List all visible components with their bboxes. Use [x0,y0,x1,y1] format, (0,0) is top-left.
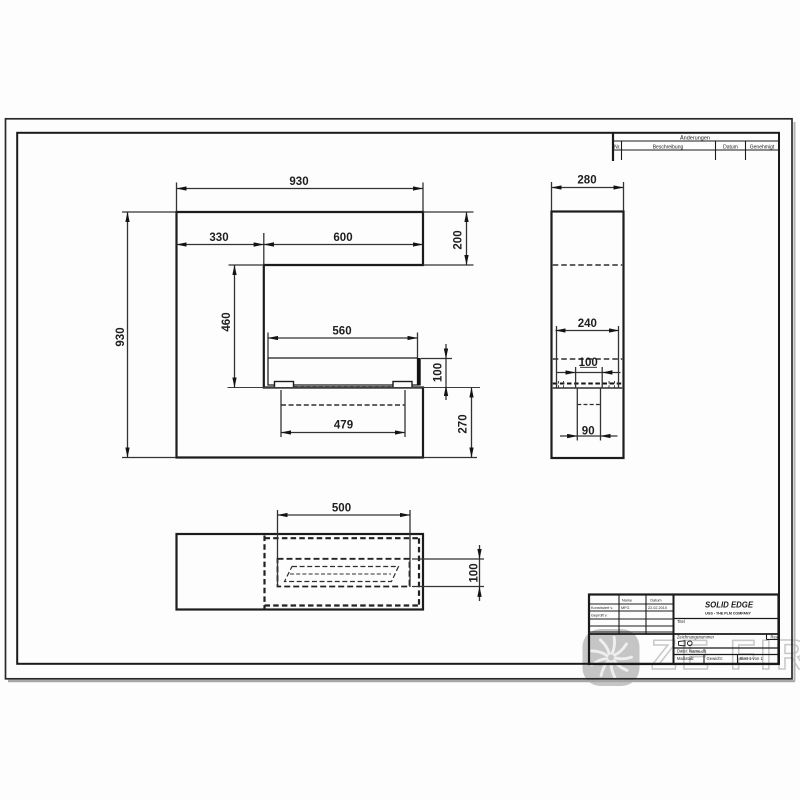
svg-text:Name: Name [622,599,632,603]
svg-text:Genehmigt: Genehmigt [750,145,775,151]
svg-text:Datei: Name.dft: Datei: Name.dft [677,649,707,654]
svg-text:Datum: Datum [723,145,738,151]
svg-text:100: 100 [433,363,445,382]
svg-text:Änderungen: Änderungen [680,135,710,142]
svg-text:460: 460 [221,312,233,331]
svg-text:22.02.2010: 22.02.2010 [648,606,667,610]
svg-text:Konstruiert v.: Konstruiert v. [591,606,613,610]
svg-text:200: 200 [453,230,465,249]
svg-text:Titel: Titel [677,619,685,624]
svg-text:500: 500 [332,503,351,515]
svg-text:930: 930 [289,176,308,188]
svg-text:Gewicht:: Gewicht: [707,656,723,661]
svg-text:Maßstab:: Maßstab: [677,656,694,661]
svg-text:Datum: Datum [650,599,661,603]
svg-text:Geprüft v.: Geprüft v. [591,614,607,618]
svg-text:600: 600 [333,232,352,244]
svg-text:479: 479 [334,420,353,432]
svg-text:330: 330 [209,232,228,244]
svg-text:Blatt 1 von 1: Blatt 1 von 1 [740,656,764,661]
svg-text:280: 280 [577,175,596,187]
svg-text:Zeichnungsnummer: Zeichnungsnummer [677,635,715,640]
svg-text:270: 270 [458,414,470,433]
svg-text:560: 560 [332,326,351,338]
svg-text:Beschreibung: Beschreibung [653,145,684,151]
svg-text:90: 90 [582,426,595,438]
svg-text:240: 240 [578,318,597,330]
svg-text:Rev: Rev [771,635,779,640]
svg-text:Nr.: Nr. [614,145,620,151]
svg-text:SOLID EDGE: SOLID EDGE [705,601,754,610]
svg-text:MFG: MFG [621,606,629,610]
svg-text:100: 100 [469,563,481,582]
svg-text:930: 930 [115,327,127,346]
svg-text:UGS - THE PLM COMPANY: UGS - THE PLM COMPANY [705,612,751,616]
